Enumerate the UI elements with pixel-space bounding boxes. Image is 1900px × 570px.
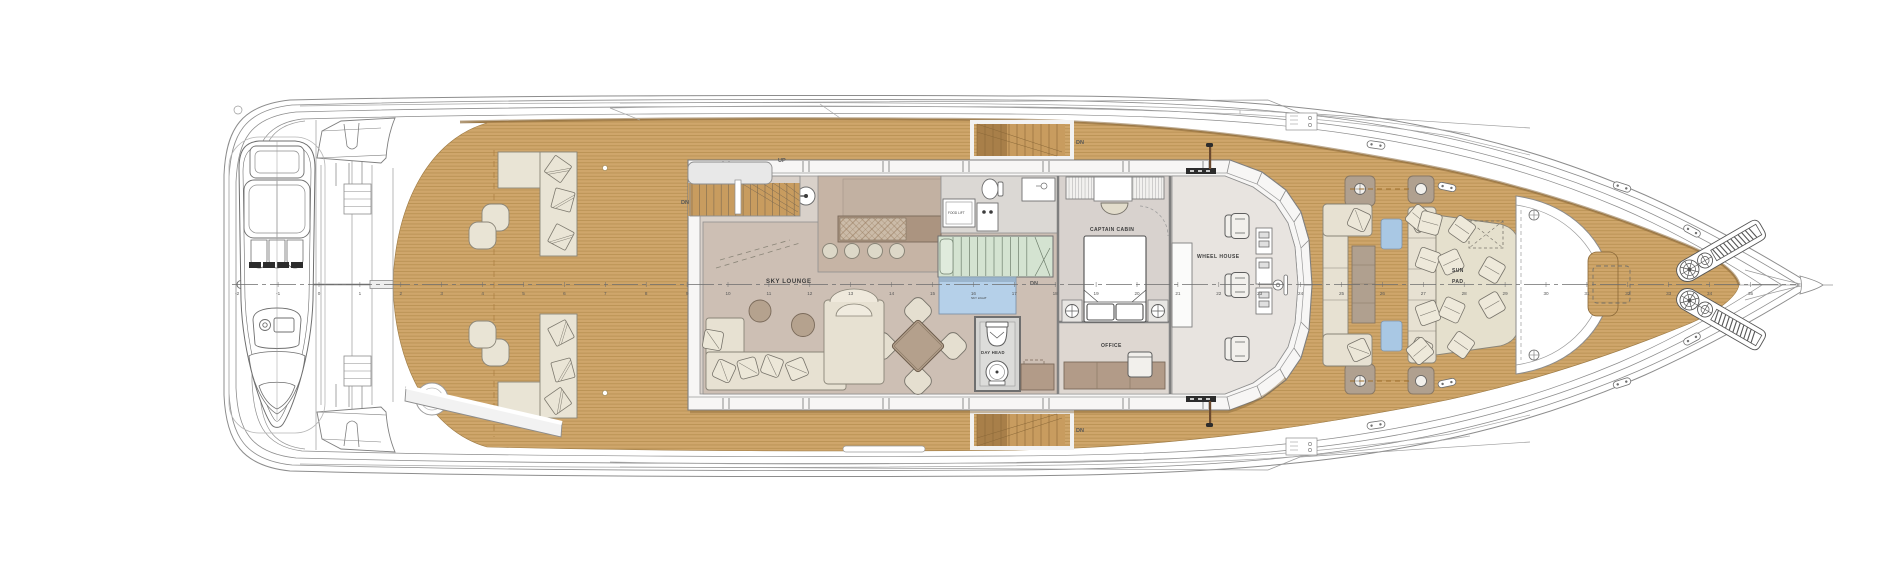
svg-text:FOOD LIFT: FOOD LIFT <box>948 211 965 215</box>
svg-text:-1: -1 <box>276 291 281 296</box>
svg-text:18: 18 <box>1053 291 1059 296</box>
svg-text:PAD: PAD <box>1452 279 1463 285</box>
svg-text:SKY LOUNGE: SKY LOUNGE <box>766 279 812 285</box>
svg-text:24: 24 <box>1298 291 1304 296</box>
svg-text:33: 33 <box>1666 291 1672 296</box>
svg-text:3: 3 <box>440 291 443 296</box>
svg-text:20: 20 <box>1134 291 1140 296</box>
svg-text:-2: -2 <box>235 291 240 296</box>
svg-text:0: 0 <box>318 291 321 296</box>
svg-text:8: 8 <box>645 291 648 296</box>
svg-text:19: 19 <box>1094 291 1100 296</box>
svg-text:5: 5 <box>522 291 525 296</box>
svg-text:16: 16 <box>971 291 977 296</box>
svg-text:29: 29 <box>1503 291 1509 296</box>
svg-text:UP: UP <box>778 158 786 164</box>
svg-text:30: 30 <box>1543 291 1549 296</box>
svg-text:DN: DN <box>1030 281 1038 287</box>
svg-text:27: 27 <box>1421 291 1427 296</box>
svg-text:12: 12 <box>807 291 813 296</box>
svg-text:DN: DN <box>1076 140 1084 146</box>
svg-text:CAPTAIN CABIN: CAPTAIN CABIN <box>1090 227 1134 233</box>
svg-text:35: 35 <box>1748 291 1754 296</box>
svg-text:34: 34 <box>1707 291 1713 296</box>
svg-text:DN: DN <box>681 200 689 206</box>
svg-text:9: 9 <box>686 291 689 296</box>
svg-text:10: 10 <box>725 291 731 296</box>
svg-text:7: 7 <box>604 291 607 296</box>
svg-text:31: 31 <box>1584 291 1590 296</box>
svg-text:SUN: SUN <box>1452 268 1464 274</box>
svg-text:26: 26 <box>1380 291 1386 296</box>
svg-text:23: 23 <box>1257 291 1263 296</box>
svg-text:1: 1 <box>359 291 362 296</box>
svg-text:13: 13 <box>848 291 854 296</box>
svg-text:2: 2 <box>400 291 403 296</box>
svg-text:28: 28 <box>1462 291 1468 296</box>
svg-text:21: 21 <box>1175 291 1181 296</box>
svg-text:14: 14 <box>889 291 895 296</box>
svg-text:SKY LIGHT: SKY LIGHT <box>971 296 987 300</box>
svg-text:22: 22 <box>1216 291 1222 296</box>
svg-text:15: 15 <box>930 291 936 296</box>
svg-text:WHEEL HOUSE: WHEEL HOUSE <box>1197 254 1240 260</box>
svg-text:32: 32 <box>1625 291 1631 296</box>
svg-text:25: 25 <box>1339 291 1345 296</box>
svg-text:17: 17 <box>1012 291 1018 296</box>
svg-text:DN: DN <box>1076 428 1084 434</box>
svg-text:OFFICE: OFFICE <box>1101 343 1122 349</box>
svg-text:DAY HEAD: DAY HEAD <box>981 350 1005 355</box>
svg-text:11: 11 <box>767 291 772 296</box>
svg-text:4: 4 <box>481 291 484 296</box>
svg-text:6: 6 <box>563 291 566 296</box>
